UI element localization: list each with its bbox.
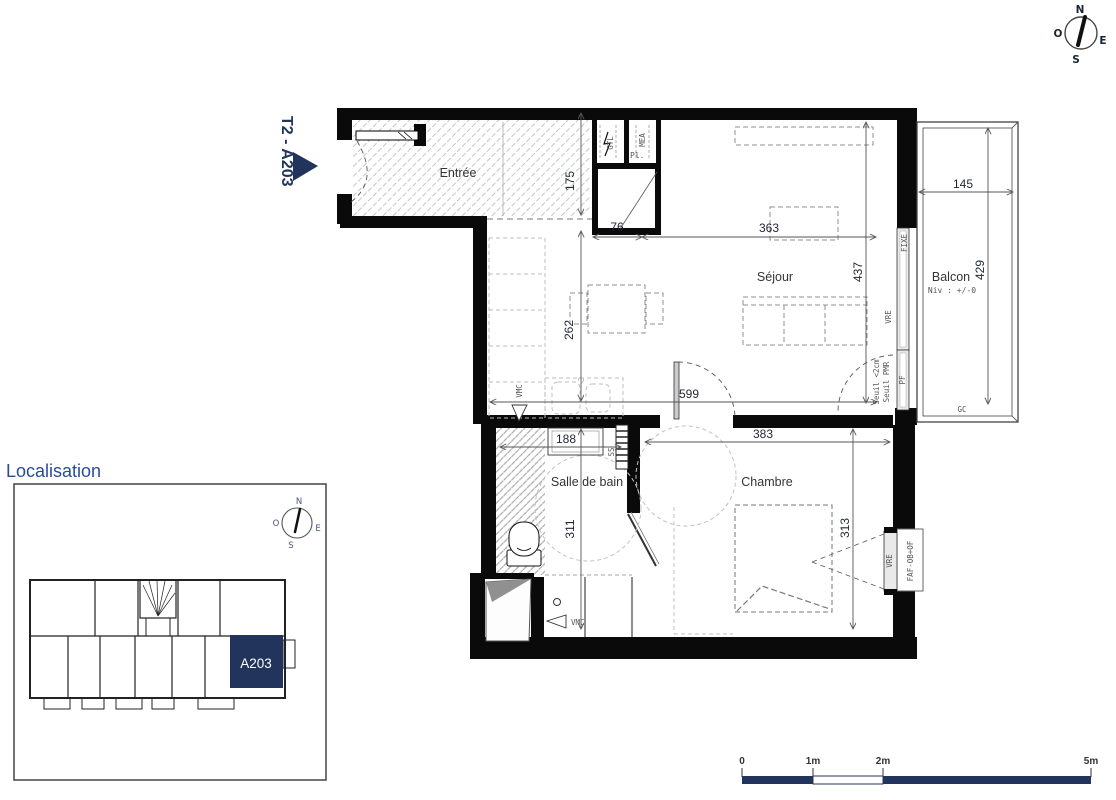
sdb-chambre-door — [628, 512, 659, 566]
hatch-zones — [352, 120, 590, 575]
vre-sejour-label: VRE — [884, 310, 893, 324]
wardrobe-outline — [674, 507, 733, 634]
dim-chambre-width: 383 — [753, 427, 773, 441]
dim-entree-depth: 175 — [563, 171, 577, 191]
vmc-arrow-sdb — [547, 615, 566, 628]
dim-sejour-depth: 437 — [851, 262, 865, 282]
unit-arrow-icon — [293, 152, 318, 181]
scale-bar: 0 1m 2m 5m — [739, 756, 1098, 784]
a203-unit-label: A203 — [240, 656, 272, 671]
gtl-label: GTL — [606, 136, 615, 150]
compass-needle-icon — [1078, 17, 1085, 45]
mea-label: MEA — [638, 133, 647, 147]
compass-main: N O E S — [1054, 4, 1107, 66]
vmc-cuisine-label: VMC — [515, 384, 524, 398]
localisation-title: Localisation — [6, 461, 101, 481]
room-label-sejour: Séjour — [757, 270, 793, 284]
scale-label-2m: 2m — [876, 756, 891, 767]
ss-label: SS — [607, 447, 616, 457]
room-label-entree: Entrée — [440, 166, 477, 180]
gc-label: GC — [957, 405, 966, 414]
sideboard — [735, 127, 873, 145]
dim-balcon-width: 145 — [953, 177, 973, 191]
compass-mini-o: O — [273, 519, 280, 529]
dim-balcon-depth: 429 — [973, 260, 987, 280]
title-block: T2 - A203 — [278, 116, 318, 187]
dim-placard-width: 76 — [610, 220, 624, 234]
balcon-level-note: Niv : +/-0 — [928, 286, 976, 295]
sofa — [743, 297, 867, 345]
faf-label: FAF-OB+OF — [906, 540, 915, 581]
highlighted-unit: A203 — [230, 635, 283, 688]
pf-window-label: PF — [898, 375, 907, 385]
chambre-window-swing — [812, 534, 884, 589]
dim-sdb-width: 188 — [556, 432, 576, 446]
scale-segment-2-5m — [883, 776, 1091, 784]
dim-sejour-total-width: 599 — [679, 387, 699, 401]
seuil-pmr-label: Seuil PMR — [882, 361, 891, 402]
pmr-circle-chambre — [636, 426, 736, 526]
seuil-2cm-label: Seuil <2cm — [872, 359, 881, 405]
compass-n: N — [1076, 4, 1085, 16]
dim-cuisine-depth: 262 — [562, 320, 576, 340]
scale-label-5m: 5m — [1084, 756, 1099, 767]
bed — [735, 505, 832, 612]
compass-mini-e: E — [315, 524, 320, 534]
floor-plan-page: 175 262 311 76 363 437 599 383 313 145 4… — [0, 0, 1116, 800]
compass-o: O — [1054, 28, 1063, 40]
compass-s: S — [1072, 54, 1080, 66]
pmr-circle-sdb — [535, 455, 641, 561]
room-label-salle-de-bain: Salle de bain — [551, 475, 623, 489]
sink — [552, 382, 580, 414]
unit-title: T2 - A203 — [278, 116, 295, 187]
room-label-balcon: Balcon — [932, 270, 970, 284]
toilet — [507, 522, 541, 566]
dim-sejour-width: 363 — [759, 221, 779, 235]
room-label-placard: Pl. — [630, 151, 644, 160]
dining-table — [570, 285, 663, 333]
floor-drain — [554, 599, 561, 606]
scale-segment-1-2m — [813, 776, 883, 784]
dim-chambre-depth: 313 — [838, 518, 852, 538]
compass-mini-n: N — [296, 497, 302, 507]
scale-label-1m: 1m — [806, 756, 821, 767]
compass-e: E — [1099, 35, 1106, 47]
kitchen-counter — [489, 238, 623, 418]
fixe-window-label: FIXE — [900, 233, 909, 252]
floor-plan-canvas: 175 262 311 76 363 437 599 383 313 145 4… — [0, 0, 1116, 800]
room-label-chambre: Chambre — [741, 475, 792, 489]
duct-shaft — [486, 579, 531, 641]
low-table — [770, 207, 838, 240]
compass-mini-s: S — [288, 541, 293, 551]
localisation-panel: Localisation N O E S — [6, 461, 326, 780]
scale-segment-0-1m — [742, 776, 813, 784]
dim-sdb-depth: 311 — [563, 519, 577, 538]
vmc-sdb-label: VMC — [571, 618, 585, 627]
scale-label-0: 0 — [739, 756, 745, 767]
vre-chambre-label: VRE — [885, 554, 894, 568]
